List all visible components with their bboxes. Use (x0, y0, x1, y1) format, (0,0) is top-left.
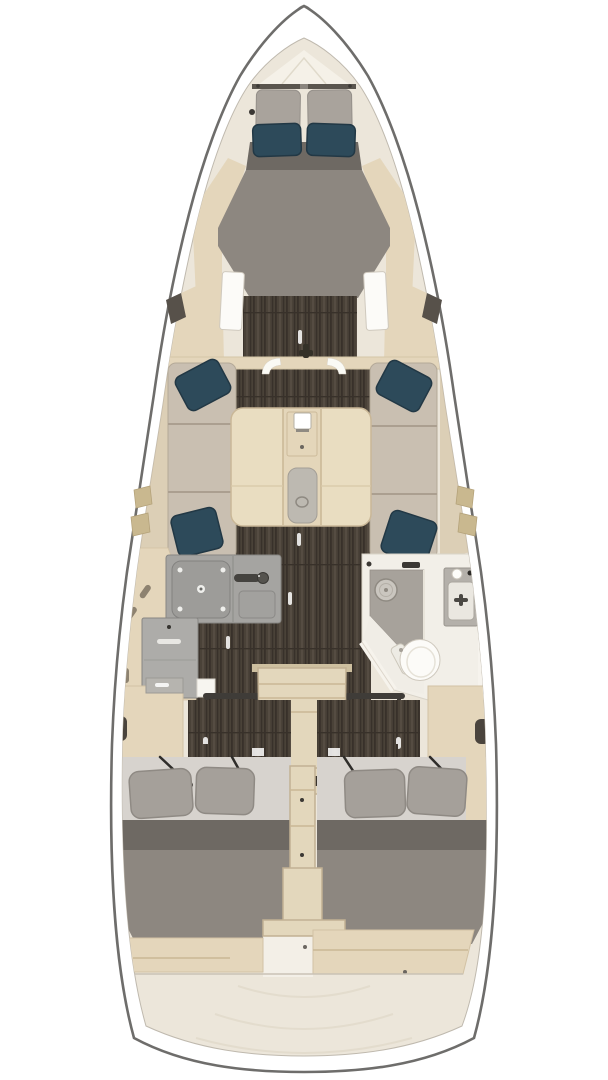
pillow-gray-port-2 (195, 767, 255, 815)
hull-window-tan-starboard-2 (458, 513, 477, 536)
door-post-port (219, 271, 244, 330)
pillow-gray-starboard-2 (406, 766, 467, 817)
light-fixture-stem (303, 344, 309, 358)
latch-box-shadow (296, 429, 309, 432)
stern-center-gap (263, 930, 313, 977)
grab-rail-port (203, 693, 263, 699)
floor-light (297, 533, 301, 546)
berth-head-band-port (106, 820, 291, 850)
shower-head-holder (452, 569, 462, 579)
berth-head-band-starboard (317, 820, 502, 850)
hull-window-tan-port-2 (131, 513, 150, 536)
faucet-base (258, 573, 269, 584)
faucet (234, 574, 260, 582)
center-partition-base (283, 868, 322, 924)
shower-rail (402, 562, 420, 568)
aft-cabin-port (106, 678, 291, 944)
cabinet-knob (167, 625, 171, 629)
door-hinge (367, 562, 372, 567)
deck-fitting (303, 945, 307, 949)
pillow-teal-forward-right (306, 123, 355, 157)
floor-plan-image (0, 0, 608, 1080)
rail-fitting-left (256, 84, 260, 88)
rail-latch (300, 84, 308, 89)
stern-band-port (120, 938, 263, 972)
stern-band-starboard (313, 930, 474, 974)
table-pin (300, 445, 304, 449)
saloon-table (231, 408, 371, 526)
floor-light (226, 636, 230, 649)
door-post-starboard (363, 271, 388, 330)
aft-cabin-starboard (317, 686, 502, 944)
pillow-gray-port-1 (128, 768, 193, 819)
floor-light (298, 330, 302, 344)
table-tray-insert (288, 468, 317, 523)
yacht-floor-plan (0, 0, 608, 1080)
toilet-hinge (399, 648, 403, 652)
rail-fitting-right (348, 84, 352, 88)
floor-light (288, 592, 292, 605)
reading-light (249, 109, 255, 115)
grab-rail-starboard (345, 693, 405, 699)
pillow-gray-starboard-1 (344, 769, 406, 818)
galley-sink (239, 591, 275, 618)
hull-window-tan-starboard-1 (456, 486, 474, 508)
toilet (400, 640, 440, 681)
table-latch-box (294, 413, 311, 429)
hull-window-tan-port-1 (134, 486, 152, 508)
cabinet-handle (157, 639, 181, 644)
pillow-teal-forward-left (252, 123, 301, 157)
